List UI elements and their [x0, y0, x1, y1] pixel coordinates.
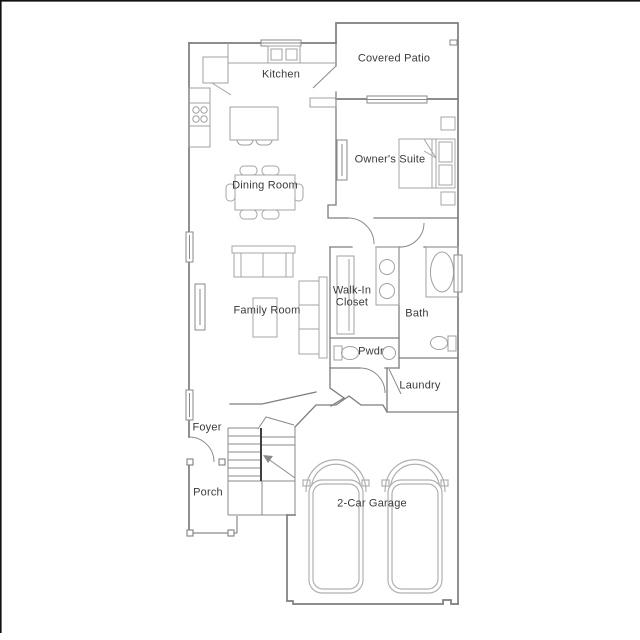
- suite-door-arc: [348, 218, 374, 244]
- bath-toilet-icon: [431, 336, 457, 351]
- porch-post: [187, 459, 193, 465]
- porch-post: [228, 530, 234, 536]
- porch-post: [219, 459, 225, 465]
- patio-corner-detail: [450, 40, 457, 45]
- family-room-furniture: [232, 246, 327, 358]
- powder-toilet-icon: [334, 346, 359, 360]
- room-label-garage: 2-Car Garage: [337, 498, 407, 510]
- range-icon: [189, 88, 210, 147]
- dining-table-icon: [226, 166, 303, 219]
- garage-cars: [303, 460, 448, 593]
- porch-post: [187, 530, 193, 536]
- front-door-arc: [189, 437, 214, 462]
- room-label-laundry: Laundry: [399, 380, 440, 392]
- side-counter: [310, 98, 336, 107]
- left-wall-window-1: [186, 232, 193, 262]
- windows: [186, 40, 462, 420]
- bath-door-arc: [400, 223, 424, 247]
- room-label-dining-room: Dining Room: [232, 180, 298, 192]
- stairs-icon: [228, 417, 295, 515]
- patio-window: [367, 96, 427, 103]
- bathtub-icon: [426, 247, 458, 297]
- left-wall-window-2: [195, 284, 205, 330]
- room-label-covered-patio: Covered Patio: [358, 53, 430, 65]
- suite-window: [337, 140, 347, 180]
- sectional-sofa-icon: [299, 277, 327, 358]
- kitchen-window: [261, 40, 301, 46]
- floor-plan-canvas: Kitchen Covered Patio Owner's Suite Dini…: [0, 0, 640, 640]
- room-label-walk-in-closet: Walk-In Closet: [324, 286, 380, 309]
- kitchen-island-icon: [230, 107, 278, 145]
- room-label-porch: Porch: [193, 487, 223, 499]
- nightstand-icon: [441, 192, 455, 205]
- room-label-owners-suite: Owner's Suite: [355, 154, 426, 166]
- floor-plan-drawing: [0, 0, 640, 640]
- room-label-foyer: Foyer: [192, 422, 221, 434]
- powder-sink-icon: [383, 347, 396, 360]
- nightstand-icon: [441, 117, 455, 130]
- patio-door: [313, 66, 336, 88]
- car-icon: [303, 460, 369, 593]
- car-icon: [382, 460, 448, 593]
- stairs-direction-arrow: [263, 455, 295, 478]
- kitchen-sink-icon: [268, 46, 300, 63]
- pantry: [203, 57, 231, 95]
- left-wall-window-3: [186, 390, 193, 420]
- kitchen-fixtures: [189, 43, 336, 147]
- room-label-bath: Bath: [405, 308, 428, 320]
- room-label-pwdr: Pwdr: [358, 346, 384, 358]
- sofa-icon: [232, 246, 295, 277]
- powder-door-arc: [360, 368, 385, 393]
- room-label-family-room: Family Room: [234, 305, 301, 317]
- room-label-kitchen: Kitchen: [262, 69, 300, 81]
